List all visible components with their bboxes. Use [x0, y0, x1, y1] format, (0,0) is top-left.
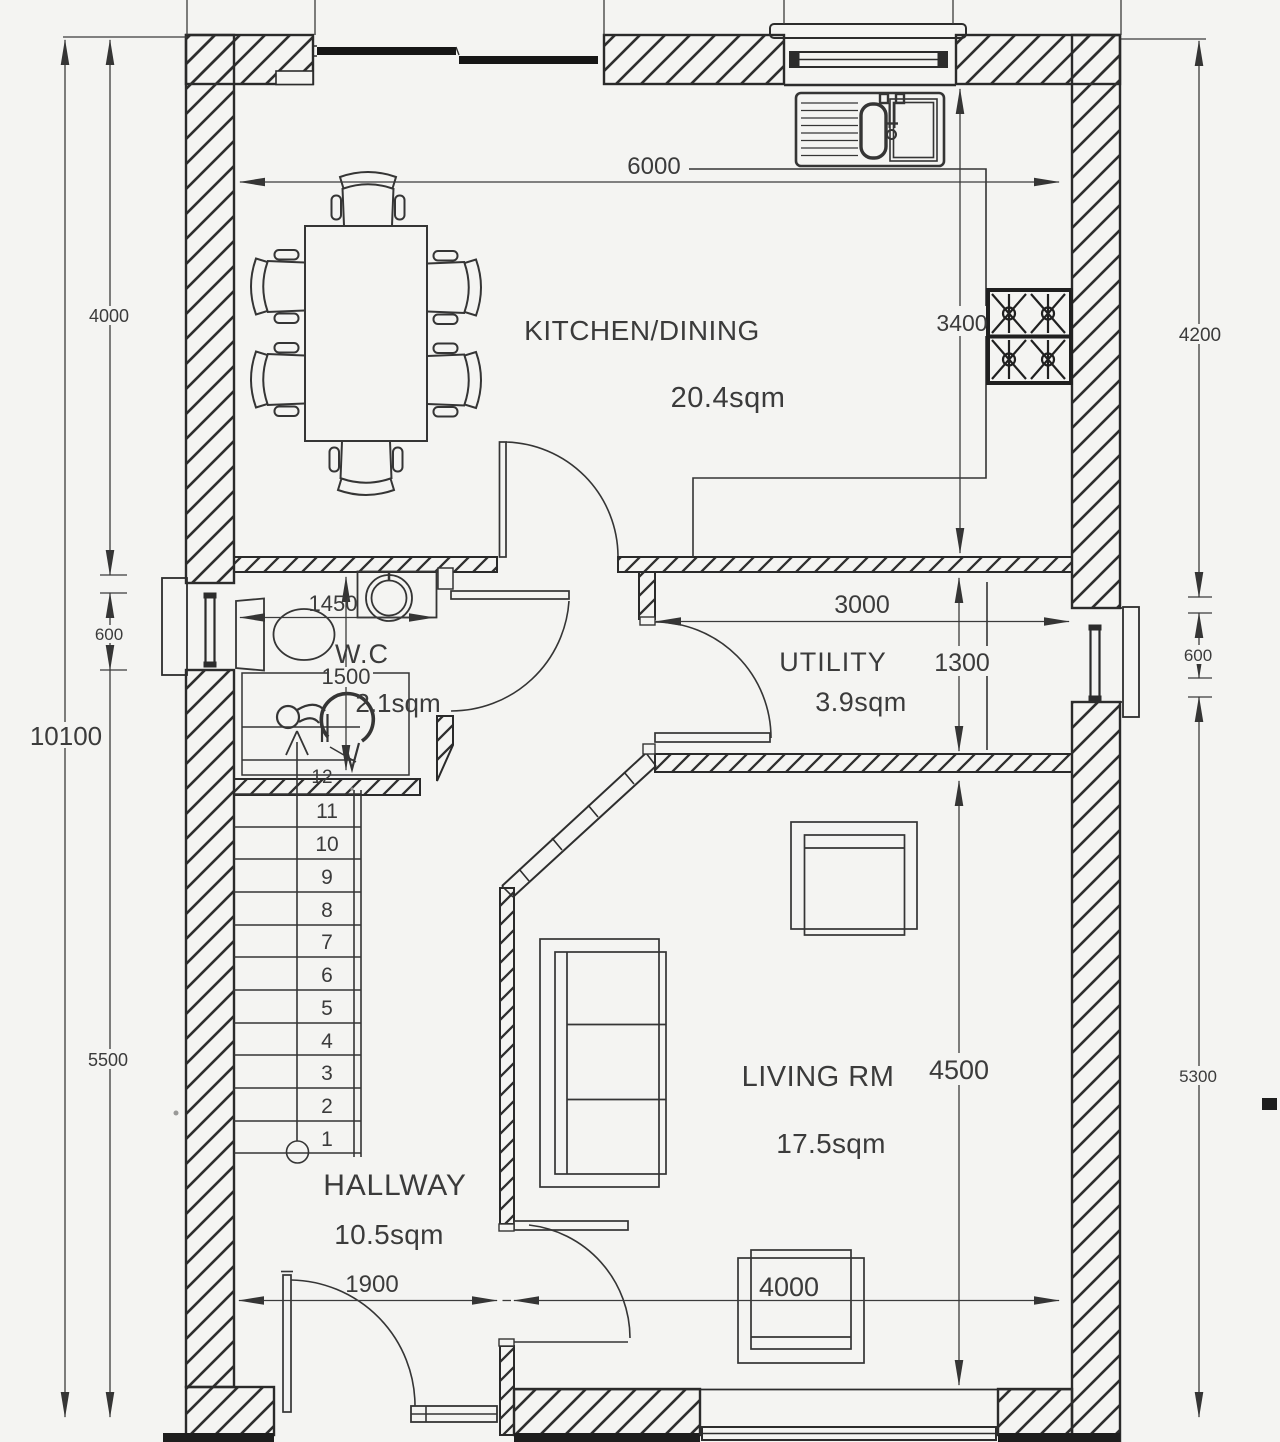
svg-text:9: 9 [321, 866, 333, 889]
svg-text:600: 600 [95, 625, 123, 644]
svg-text:600: 600 [1184, 646, 1212, 665]
svg-text:3: 3 [321, 1062, 333, 1085]
svg-text:2: 2 [321, 1095, 333, 1118]
svg-text:6: 6 [321, 964, 333, 987]
svg-text:4: 4 [321, 1030, 333, 1053]
svg-text:2.1sqm: 2.1sqm [355, 688, 440, 718]
svg-text:1: 1 [321, 1128, 333, 1151]
svg-text:4000: 4000 [89, 306, 129, 326]
svg-text:5: 5 [321, 997, 333, 1020]
svg-text:8: 8 [321, 899, 333, 922]
svg-text:LIVING RM: LIVING RM [742, 1061, 895, 1093]
svg-text:5500: 5500 [88, 1050, 128, 1070]
svg-text:12: 12 [311, 767, 332, 788]
svg-text:4500: 4500 [929, 1055, 989, 1085]
svg-text:HALLWAY: HALLWAY [323, 1169, 466, 1202]
svg-text:20.4sqm: 20.4sqm [671, 382, 786, 414]
svg-text:KITCHEN/DINING: KITCHEN/DINING [524, 315, 760, 346]
svg-text:6000: 6000 [627, 153, 680, 180]
svg-text:3000: 3000 [834, 591, 890, 619]
svg-text:1500: 1500 [322, 664, 371, 689]
svg-text:10: 10 [315, 833, 338, 856]
svg-text:5300: 5300 [1179, 1067, 1217, 1086]
svg-text:3400: 3400 [936, 310, 987, 336]
svg-text:4000: 4000 [759, 1272, 819, 1302]
svg-text:10.5sqm: 10.5sqm [334, 1219, 444, 1250]
svg-text:UTILITY: UTILITY [779, 647, 887, 677]
svg-text:7: 7 [321, 931, 333, 954]
svg-text:17.5sqm: 17.5sqm [776, 1128, 886, 1159]
svg-text:1450: 1450 [309, 591, 358, 616]
svg-text:11: 11 [316, 800, 338, 823]
svg-text:4200: 4200 [1179, 325, 1221, 346]
svg-text:1300: 1300 [934, 649, 990, 677]
svg-text:1900: 1900 [345, 1271, 398, 1298]
svg-text:10100: 10100 [30, 721, 102, 751]
svg-text:3.9sqm: 3.9sqm [815, 687, 907, 717]
